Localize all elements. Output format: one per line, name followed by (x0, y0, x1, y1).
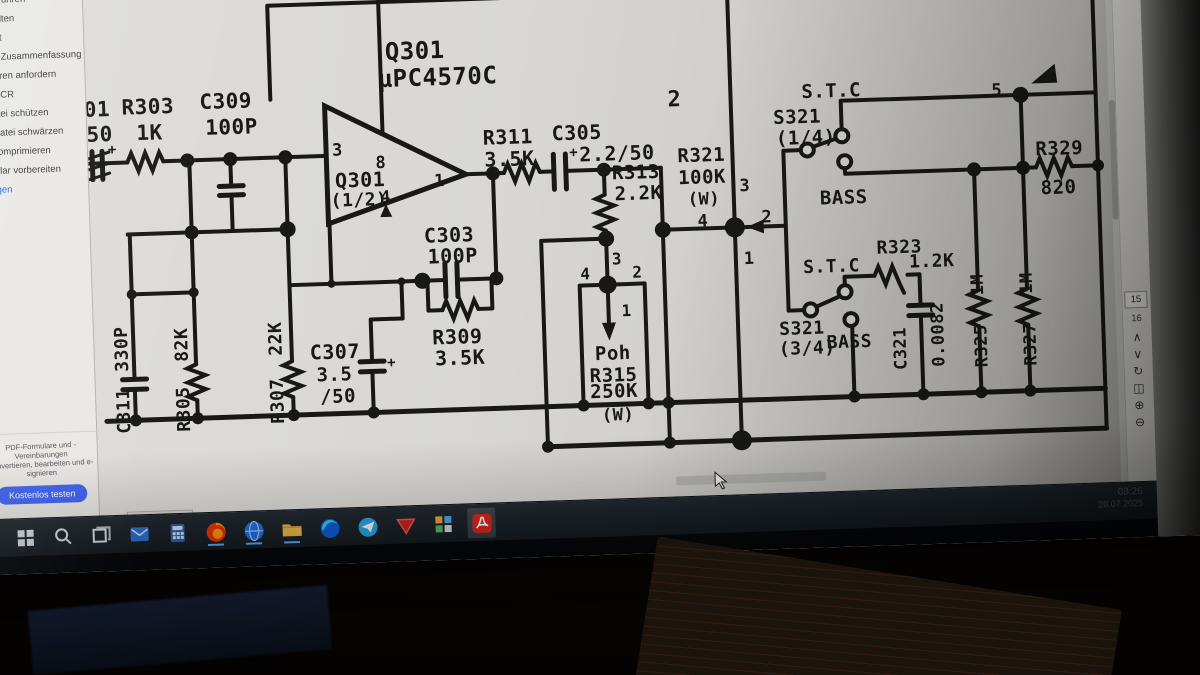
schematic-label: 820 (1040, 176, 1077, 199)
schematic-label: 3 (739, 176, 750, 196)
schematic-label: 2.2K (614, 182, 663, 206)
schematic-label: 1 (621, 301, 632, 320)
schematic-label: 3.5K (435, 345, 486, 371)
floating-page-tools: 15 16 ∧∨↻◫⊕⊖ (1122, 291, 1154, 432)
sidebar-item[interactable]: rative Zusammenfassung (0, 45, 84, 68)
export-button[interactable]: ◫ (1128, 380, 1150, 398)
schematic-label: 1K (136, 120, 163, 145)
corner-flag-arrow (1031, 64, 1058, 84)
schematic-canvas: 301/50+R3031KC309100PQ301μPC4570C38Q301(… (0, 0, 1191, 519)
sidebar: n zus.führenverwaltensistentrative Zusam… (0, 0, 100, 519)
zoom-out-button[interactable]: ⊖ (1129, 414, 1151, 432)
schematic-label: 3 (611, 249, 622, 268)
schematic-label: 1M (1016, 272, 1037, 294)
total-page-label: 16 (1131, 313, 1142, 324)
mouse-cursor (714, 471, 731, 492)
schematic-label: R327 (1020, 322, 1041, 366)
schematic-label: 4 (580, 264, 591, 283)
schematic-label: S.T.C (801, 79, 861, 103)
schematic-label: R329 (1035, 137, 1083, 161)
schematic-label: 4 (380, 187, 391, 206)
schematic-label: 5 (991, 80, 1002, 100)
taskbar-firefox-icon[interactable] (201, 516, 230, 547)
sidebar-promo: PDF-Formulare und -Vereinbarungen konver… (0, 431, 99, 506)
schematic-label: R307 (267, 378, 289, 424)
schematic-label: 2 (632, 262, 643, 281)
taskbar-acrobat-icon[interactable] (467, 507, 496, 538)
schematic-label: C309 (199, 88, 252, 114)
sidebar-item-list: n zus.führenverwaltensistentrative Zusam… (0, 0, 88, 201)
taskbar-task-view-icon[interactable] (87, 520, 116, 551)
schematic-label: + (387, 355, 396, 371)
schematic-label: + (569, 145, 578, 161)
schematic-label: 0.0082 (927, 302, 949, 367)
schematic-label: Poh (595, 342, 632, 365)
clock-date: 28.07.2025 (1098, 498, 1143, 510)
chevron-up-button[interactable]: ∧ (1126, 329, 1148, 347)
desk-device (28, 585, 332, 675)
taskbar-color-grid-app-icon[interactable] (429, 509, 458, 540)
schematic-label: BASS (826, 331, 872, 353)
schematic-label: 250K (590, 380, 639, 404)
schematic-label: R325 (971, 324, 992, 368)
schematic-label: 330P (111, 326, 133, 372)
sidebar-item[interactable]: nzeigen (0, 178, 88, 201)
schematic-label: 3.5K (484, 146, 535, 172)
schematic-label: 3.5 (316, 363, 353, 386)
schematic-label: 82K (171, 327, 193, 362)
taskbar-mail-icon[interactable] (125, 519, 154, 550)
schematic-label: 100K (678, 166, 727, 190)
schematic-label: (W) (688, 189, 721, 210)
taskbar-paper-plane-icon[interactable] (353, 511, 382, 542)
taskbar-folder-icon[interactable] (277, 514, 306, 545)
taskbar-clock[interactable]: 03:26 28.07.2025 (1098, 486, 1144, 510)
schematic-label: 2 (761, 207, 772, 227)
schematic-label: S.T.C (803, 255, 860, 278)
schematic-label: BASS (820, 186, 868, 210)
taskbar-red-triangle-app-icon[interactable] (391, 510, 420, 541)
current-page-input[interactable]: 15 (1124, 291, 1148, 309)
schematic-label: C311 (113, 388, 135, 434)
desk-paper (628, 536, 1122, 675)
schematic-label: Q301 (384, 36, 445, 66)
chevron-down-button[interactable]: ∨ (1127, 346, 1149, 364)
schematic-label: R313 (612, 161, 660, 185)
schematic-label: C307 (309, 339, 360, 365)
tool-stack: ∧∨↻◫⊕⊖ (1126, 329, 1150, 432)
promo-text-line2: konvertieren, bearbeiten und e-signieren (0, 457, 98, 481)
schematic-label: μPC4570C (377, 61, 497, 93)
schematic-label: R321 (677, 144, 725, 168)
schematic-label: 2 (667, 87, 682, 112)
taskbar-globe-icon[interactable] (239, 515, 268, 546)
schematic-label: 100P (427, 243, 478, 269)
schematic-label: R305 (173, 386, 195, 432)
taskbar-start-icon[interactable] (11, 523, 40, 554)
monitor-screen: n zus.führenverwaltensistentrative Zusam… (0, 0, 1200, 575)
schematic-label: 1 (744, 249, 755, 269)
schematic-label: 1 (434, 171, 445, 191)
schematic-label: C321 (890, 327, 911, 371)
schematic-label: 4 (697, 211, 708, 231)
schematic-label: 22K (265, 321, 287, 356)
taskbar-search-icon[interactable] (49, 521, 78, 552)
schematic-label: R303 (121, 94, 174, 120)
schematic-label: (1/4) (776, 126, 836, 150)
refresh-button[interactable]: ↻ (1128, 363, 1150, 381)
schematic-label: 3 (332, 140, 343, 160)
schematic-label: S321 (779, 317, 825, 339)
schematic-label: + (108, 142, 117, 158)
schematic-label: 1.2K (909, 250, 955, 272)
free-trial-button[interactable]: Kostenlos testen (0, 484, 88, 505)
schematic-labels: 301/50+R3031KC309100PQ301μPC4570C38Q301(… (69, 15, 1092, 443)
taskbar-calculator-icon[interactable] (163, 518, 192, 549)
schematic-label: S321 (773, 105, 821, 129)
desk-photo: n zus.führenverwaltensistentrative Zusam… (0, 0, 1200, 675)
schematic-label: /50 (320, 385, 357, 408)
zoom-in-button[interactable]: ⊕ (1129, 397, 1151, 415)
schematic-label: 100P (205, 114, 258, 140)
schematic-label: (W) (602, 405, 635, 426)
schematic-label: (1/2) (330, 189, 387, 212)
pot-wiper-arrow (602, 322, 617, 340)
schematic-label: 1M (968, 274, 989, 296)
taskbar-edge-icon[interactable] (315, 513, 344, 544)
